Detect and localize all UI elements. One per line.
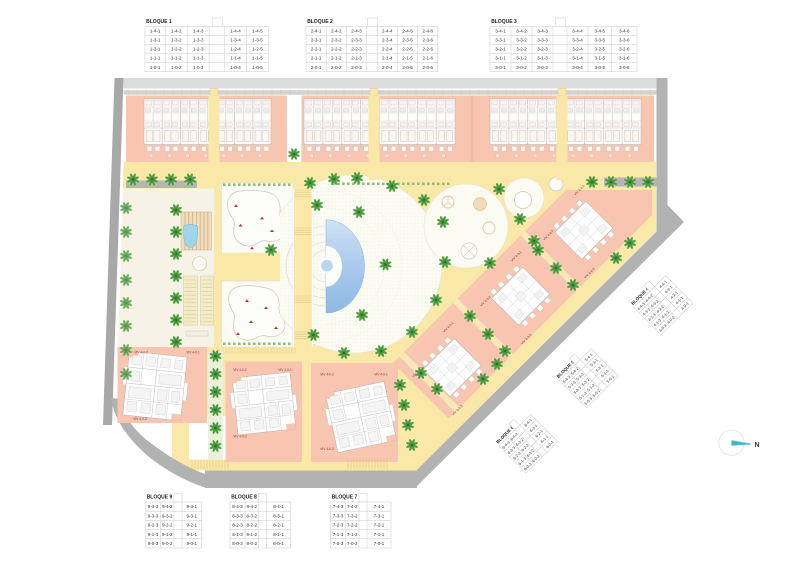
svg-text:3-3-6: 3-3-6	[619, 38, 630, 43]
svg-text:7-3-1: 7-3-1	[374, 513, 385, 518]
svg-text:9-4-1: 9-4-1	[187, 504, 198, 509]
svg-text:3-4-1: 3-4-1	[495, 28, 506, 33]
svg-text:VIV 4-0-3: VIV 4-0-3	[133, 417, 147, 421]
svg-text:7-0-3: 7-0-3	[333, 541, 344, 546]
svg-text:1-0-4: 1-0-4	[230, 65, 241, 70]
svg-text:1-4-2: 1-4-2	[171, 28, 182, 33]
svg-text:2-2-6: 2-2-6	[422, 47, 433, 52]
svg-text:BLOQUE 8: BLOQUE 8	[231, 495, 257, 501]
svg-text:1-4-1: 1-4-1	[150, 28, 161, 33]
svg-text:2-3-1: 2-3-1	[311, 38, 322, 43]
svg-text:2-4-3: 2-4-3	[351, 28, 362, 33]
svg-text:8-3-1: 8-3-1	[273, 513, 284, 518]
svg-text:3-0-4: 3-0-4	[572, 65, 583, 70]
svg-text:2-2-3: 2-2-3	[351, 47, 362, 52]
svg-text:9-3-2: 9-3-2	[162, 513, 173, 518]
svg-text:1-4-3: 1-4-3	[193, 28, 204, 33]
svg-text:7-2-3: 7-2-3	[333, 523, 344, 528]
svg-text:1-2-4: 1-2-4	[230, 47, 241, 52]
svg-text:7-3-3: 7-3-3	[333, 513, 344, 518]
svg-text:BLOQUE 7: BLOQUE 7	[332, 495, 358, 501]
svg-text:8-1-1: 8-1-1	[273, 532, 284, 537]
svg-text:8-4-1: 8-4-1	[273, 504, 284, 509]
svg-text:8-1-3: 8-1-3	[232, 532, 243, 537]
svg-text:3-0-3: 3-0-3	[537, 65, 548, 70]
svg-text:1-1-3: 1-1-3	[193, 56, 204, 61]
svg-text:1-1-2: 1-1-2	[171, 56, 182, 61]
svg-text:9-2-2: 9-2-2	[162, 523, 173, 528]
svg-text:2-1-6: 2-1-6	[422, 56, 433, 61]
svg-text:1-2-2: 1-2-2	[171, 47, 182, 52]
svg-text:7-0-1: 7-0-1	[374, 541, 385, 546]
svg-text:2-1-4: 2-1-4	[382, 56, 393, 61]
svg-text:2-1-5: 2-1-5	[402, 56, 413, 61]
svg-text:2-4-5: 2-4-5	[402, 28, 413, 33]
svg-text:3-4-2: 3-4-2	[516, 28, 527, 33]
svg-text:2-0-5: 2-0-5	[402, 65, 413, 70]
svg-text:1-0-3: 1-0-3	[193, 65, 204, 70]
svg-text:8-3-3: 8-3-3	[232, 513, 243, 518]
svg-text:3-4-3: 3-4-3	[537, 28, 548, 33]
svg-text:3-1-5: 3-1-5	[595, 56, 606, 61]
svg-text:3-2-5: 3-2-5	[595, 47, 606, 52]
svg-text:BLOQUE 1: BLOQUE 1	[146, 19, 172, 25]
svg-text:3-2-6: 3-2-6	[619, 47, 630, 52]
svg-text:8-4-3: 8-4-3	[232, 504, 243, 509]
svg-text:1-3-4: 1-3-4	[230, 38, 241, 43]
svg-text:7-1-2: 7-1-2	[347, 532, 358, 537]
svg-text:VIV 4-0-1: VIV 4-0-1	[278, 368, 292, 372]
svg-text:9-4-3: 9-4-3	[148, 504, 159, 509]
svg-text:2-1-3: 2-1-3	[351, 56, 362, 61]
svg-text:9-1-3: 9-1-3	[148, 532, 159, 537]
svg-text:3-0-5: 3-0-5	[595, 65, 606, 70]
svg-text:3-3-5: 3-3-5	[595, 38, 606, 43]
svg-text:2-0-1: 2-0-1	[311, 65, 322, 70]
svg-text:1-3-5: 1-3-5	[252, 38, 263, 43]
svg-text:9-4-2: 9-4-2	[162, 504, 173, 509]
svg-text:3-1-1: 3-1-1	[495, 56, 506, 61]
svg-text:9-0-2: 9-0-2	[162, 541, 173, 546]
svg-text:2-0-4: 2-0-4	[382, 65, 393, 70]
svg-text:3-1-6: 3-1-6	[619, 56, 630, 61]
svg-text:8-3-2: 8-3-2	[247, 513, 258, 518]
svg-text:8-0-1: 8-0-1	[273, 541, 284, 546]
svg-text:3-3-1: 3-3-1	[495, 38, 506, 43]
svg-text:3-0-2: 3-0-2	[516, 65, 527, 70]
svg-text:8-0-3: 8-0-3	[232, 541, 243, 546]
svg-text:9-1-1: 9-1-1	[187, 532, 198, 537]
svg-text:2-4-1: 2-4-1	[311, 28, 322, 33]
svg-text:9-3-1: 9-3-1	[187, 513, 198, 518]
svg-text:3-4-6: 3-4-6	[619, 28, 630, 33]
svg-text:1-2-3: 1-2-3	[193, 47, 204, 52]
svg-text:1-3-1: 1-3-1	[150, 38, 161, 43]
svg-text:1-1-5: 1-1-5	[252, 56, 263, 61]
svg-text:2-0-6: 2-0-6	[422, 65, 433, 70]
svg-text:N: N	[755, 442, 760, 449]
svg-text:2-2-4: 2-2-4	[382, 47, 393, 52]
svg-text:VIV 4-0-1: VIV 4-0-1	[374, 373, 388, 377]
svg-text:3-4-5: 3-4-5	[595, 28, 606, 33]
svg-text:9-1-2: 9-1-2	[162, 532, 173, 537]
svg-text:7-3-2: 7-3-2	[347, 513, 358, 518]
svg-text:3-3-4: 3-3-4	[572, 38, 583, 43]
svg-text:2-3-3: 2-3-3	[351, 38, 362, 43]
svg-text:8-2-1: 8-2-1	[273, 523, 284, 528]
svg-text:BLOQUE 3: BLOQUE 3	[491, 19, 517, 25]
svg-text:1-4-4: 1-4-4	[230, 28, 241, 33]
svg-text:1-0-1: 1-0-1	[150, 65, 161, 70]
svg-text:1-1-1: 1-1-1	[150, 56, 161, 61]
svg-text:9-2-3: 9-2-3	[148, 523, 159, 528]
svg-text:3-4-4: 3-4-4	[572, 28, 583, 33]
svg-text:2-1-1: 2-1-1	[311, 56, 322, 61]
svg-text:2-4-4: 2-4-4	[382, 28, 393, 33]
svg-text:3-1-4: 3-1-4	[572, 56, 583, 61]
svg-text:3-2-4: 3-2-4	[572, 47, 583, 52]
svg-text:7-4-1: 7-4-1	[374, 504, 385, 509]
svg-text:VIV 4-0-1: VIV 4-0-1	[186, 351, 200, 355]
svg-text:7-1-3: 7-1-3	[333, 532, 344, 537]
svg-text:BLOQUE 2: BLOQUE 2	[307, 19, 333, 25]
svg-text:9-0-3: 9-0-3	[148, 541, 159, 546]
svg-text:7-4-3: 7-4-3	[333, 504, 344, 509]
svg-text:2-2-2: 2-2-2	[331, 47, 342, 52]
svg-text:1-4-5: 1-4-5	[252, 28, 263, 33]
svg-text:2-3-4: 2-3-4	[382, 38, 393, 43]
svg-text:9-2-1: 9-2-1	[187, 523, 198, 528]
svg-text:8-1-2: 8-1-2	[247, 532, 258, 537]
svg-text:2-1-2: 2-1-2	[331, 56, 342, 61]
svg-text:1-0-2: 1-0-2	[171, 65, 182, 70]
svg-text:9-3-3: 9-3-3	[148, 513, 159, 518]
svg-text:2-0-3: 2-0-3	[351, 65, 362, 70]
svg-text:2-4-6: 2-4-6	[422, 28, 433, 33]
svg-text:BLOQUE 9: BLOQUE 9	[147, 495, 173, 501]
svg-text:3-2-3: 3-2-3	[537, 47, 548, 52]
svg-text:3-1-3: 3-1-3	[537, 56, 548, 61]
svg-text:7-2-1: 7-2-1	[374, 523, 385, 528]
svg-text:1-3-3: 1-3-3	[193, 38, 204, 43]
svg-text:1-2-1: 1-2-1	[150, 47, 161, 52]
svg-text:3-1-2: 3-1-2	[516, 56, 527, 61]
svg-text:8-4-2: 8-4-2	[247, 504, 258, 509]
svg-text:VIV 4-0-2: VIV 4-0-2	[134, 351, 148, 355]
svg-text:3-2-2: 3-2-2	[516, 47, 527, 52]
svg-text:3-0-1: 3-0-1	[495, 65, 506, 70]
svg-text:2-2-1: 2-2-1	[311, 47, 322, 52]
svg-text:VIV 4-0-3: VIV 4-0-3	[233, 435, 247, 439]
svg-text:2-3-6: 2-3-6	[422, 38, 433, 43]
svg-text:1-0-5: 1-0-5	[252, 65, 263, 70]
svg-text:8-2-2: 8-2-2	[247, 523, 258, 528]
svg-text:3-3-3: 3-3-3	[537, 38, 548, 43]
svg-text:2-3-2: 2-3-2	[331, 38, 342, 43]
svg-text:2-2-5: 2-2-5	[402, 47, 413, 52]
svg-text:VIV 4-0-3: VIV 4-0-3	[320, 447, 334, 451]
svg-text:7-2-2: 7-2-2	[347, 523, 358, 528]
svg-text:9-0-1: 9-0-1	[187, 541, 198, 546]
svg-text:1-3-2: 1-3-2	[171, 38, 182, 43]
svg-text:VIV 4-0-2: VIV 4-0-2	[233, 368, 247, 372]
svg-text:3-0-6: 3-0-6	[619, 65, 630, 70]
svg-text:VIV 4-0-2: VIV 4-0-2	[320, 373, 334, 377]
svg-text:1-2-5: 1-2-5	[252, 47, 263, 52]
svg-text:8-0-2: 8-0-2	[247, 541, 258, 546]
svg-text:3-3-2: 3-3-2	[516, 38, 527, 43]
svg-text:2-0-2: 2-0-2	[331, 65, 342, 70]
svg-text:7-0-2: 7-0-2	[347, 541, 358, 546]
svg-text:7-4-2: 7-4-2	[347, 504, 358, 509]
svg-text:2-3-5: 2-3-5	[402, 38, 413, 43]
svg-text:3-2-1: 3-2-1	[495, 47, 506, 52]
svg-text:2-4-2: 2-4-2	[331, 28, 342, 33]
svg-text:1-1-4: 1-1-4	[230, 56, 241, 61]
svg-text:7-1-1: 7-1-1	[374, 532, 385, 537]
svg-text:8-2-3: 8-2-3	[232, 523, 243, 528]
